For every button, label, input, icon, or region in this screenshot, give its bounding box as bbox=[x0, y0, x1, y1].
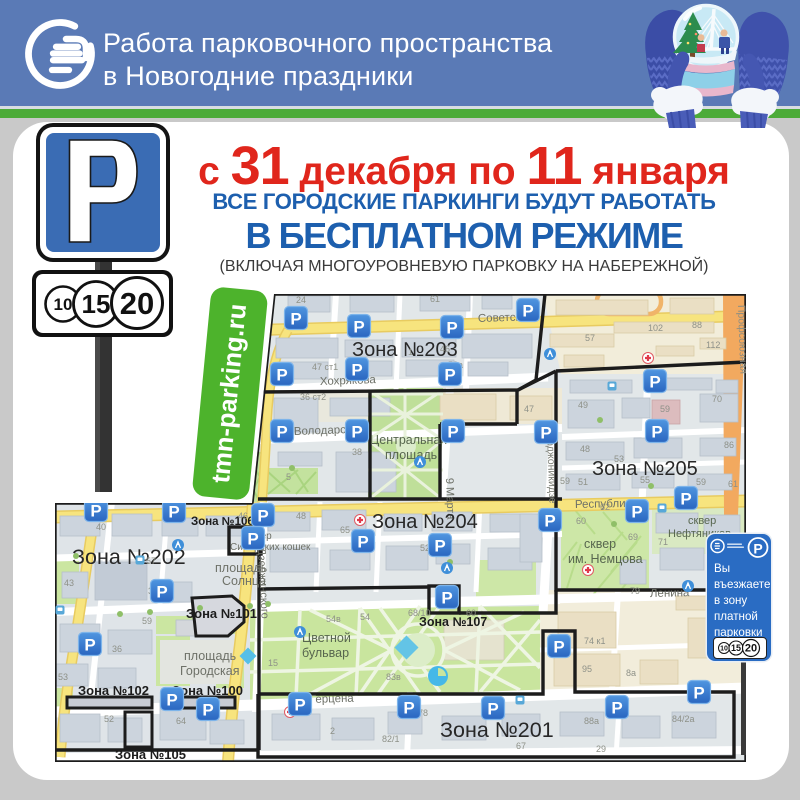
svg-text:46: 46 bbox=[238, 511, 248, 521]
svg-text:20: 20 bbox=[745, 643, 757, 655]
svg-text:79: 79 bbox=[630, 586, 640, 596]
svg-text:61: 61 bbox=[430, 294, 440, 304]
svg-text:Зона №101: Зона №101 bbox=[186, 606, 257, 621]
svg-text:Зона №201: Зона №201 bbox=[440, 718, 554, 742]
svg-text:Зона №202: Зона №202 bbox=[72, 545, 186, 569]
svg-text:83в: 83в bbox=[386, 672, 401, 682]
svg-text:57: 57 bbox=[585, 333, 595, 343]
svg-text:84/2а: 84/2а bbox=[672, 714, 695, 724]
svg-text:15: 15 bbox=[731, 643, 741, 653]
svg-text:10: 10 bbox=[720, 646, 728, 653]
svg-text:24: 24 bbox=[296, 295, 306, 305]
svg-text:67: 67 bbox=[516, 741, 526, 751]
svg-text:Герцена: Герцена bbox=[310, 693, 355, 706]
svg-text:Зона №102: Зона №102 bbox=[78, 683, 149, 698]
svg-text:47 ст1: 47 ст1 bbox=[312, 362, 338, 372]
svg-text:36: 36 bbox=[112, 644, 122, 654]
svg-text:5: 5 bbox=[286, 472, 291, 482]
svg-text:Городская: Городская bbox=[180, 664, 240, 678]
svg-text:95: 95 bbox=[582, 664, 592, 674]
svg-text:59: 59 bbox=[660, 404, 670, 414]
svg-text:платной: платной bbox=[714, 610, 758, 623]
svg-text:36 ст2: 36 ст2 bbox=[300, 392, 326, 402]
svg-text:51: 51 bbox=[578, 477, 588, 487]
svg-text:48: 48 bbox=[580, 444, 590, 454]
svg-text:40: 40 bbox=[96, 522, 106, 532]
svg-text:53: 53 bbox=[614, 454, 624, 464]
svg-text:в зону: в зону bbox=[714, 594, 747, 607]
svg-text:88: 88 bbox=[692, 320, 702, 330]
svg-text:Зона №204: Зона №204 bbox=[372, 511, 478, 533]
svg-text:29: 29 bbox=[596, 744, 606, 754]
svg-text:60: 60 bbox=[576, 516, 586, 526]
svg-text:68/10: 68/10 bbox=[408, 608, 431, 618]
svg-text:60: 60 bbox=[466, 608, 476, 618]
svg-text:площадь: площадь bbox=[215, 561, 267, 575]
svg-text:102: 102 bbox=[648, 323, 663, 333]
svg-text:54в: 54в bbox=[326, 614, 341, 624]
svg-text:57: 57 bbox=[146, 556, 156, 566]
svg-text:69: 69 bbox=[628, 532, 638, 542]
svg-text:52: 52 bbox=[104, 714, 114, 724]
svg-text:74 к1: 74 к1 bbox=[584, 636, 605, 646]
svg-text:8а: 8а bbox=[626, 668, 636, 678]
svg-text:им. Немцова: им. Немцова bbox=[568, 552, 643, 566]
svg-text:61: 61 bbox=[728, 479, 738, 489]
svg-text:сквер: сквер bbox=[688, 515, 716, 527]
svg-text:бульвар: бульвар bbox=[302, 646, 349, 660]
svg-text:65: 65 bbox=[340, 525, 350, 535]
svg-text:45: 45 bbox=[246, 462, 256, 472]
svg-text:55: 55 bbox=[640, 475, 650, 485]
svg-text:P: P bbox=[753, 541, 762, 557]
svg-text:1: 1 bbox=[408, 347, 413, 357]
svg-text:59: 59 bbox=[696, 477, 706, 487]
svg-text:15: 15 bbox=[268, 658, 278, 668]
svg-text:49: 49 bbox=[578, 400, 588, 410]
svg-text:46: 46 bbox=[440, 344, 450, 354]
svg-text:88а: 88а bbox=[584, 716, 599, 726]
svg-text:Солнца: Солнца bbox=[222, 574, 266, 588]
svg-text:сквер: сквер bbox=[584, 537, 616, 551]
svg-text:48: 48 bbox=[296, 511, 306, 521]
svg-text:64: 64 bbox=[176, 716, 186, 726]
svg-text:Вы: Вы bbox=[714, 562, 730, 575]
svg-text:2: 2 bbox=[330, 726, 335, 736]
svg-text:70: 70 bbox=[712, 394, 722, 404]
svg-text:82/1: 82/1 bbox=[382, 734, 400, 744]
svg-text:Зона №105: Зона №105 bbox=[115, 747, 186, 762]
svg-text:86: 86 bbox=[724, 440, 734, 450]
svg-text:38: 38 bbox=[352, 447, 362, 457]
svg-text:47: 47 bbox=[524, 404, 534, 414]
svg-text:43: 43 bbox=[64, 578, 74, 588]
svg-text:59: 59 bbox=[142, 616, 152, 626]
svg-text:Профсоюзная: Профсоюзная bbox=[735, 305, 749, 374]
svg-text:112: 112 bbox=[706, 340, 720, 350]
svg-text:въезжаете: въезжаете bbox=[714, 578, 770, 591]
svg-text:59: 59 bbox=[560, 476, 570, 486]
svg-text:Центральная: Центральная bbox=[370, 433, 447, 447]
svg-text:54: 54 bbox=[360, 612, 370, 622]
svg-text:71: 71 bbox=[658, 537, 668, 547]
svg-text:62: 62 bbox=[600, 502, 610, 512]
svg-text:Цветной: Цветной bbox=[302, 631, 351, 645]
svg-text:площадь: площадь bbox=[385, 448, 437, 462]
svg-text:53: 53 bbox=[58, 672, 68, 682]
svg-text:площадь: площадь bbox=[184, 649, 236, 663]
